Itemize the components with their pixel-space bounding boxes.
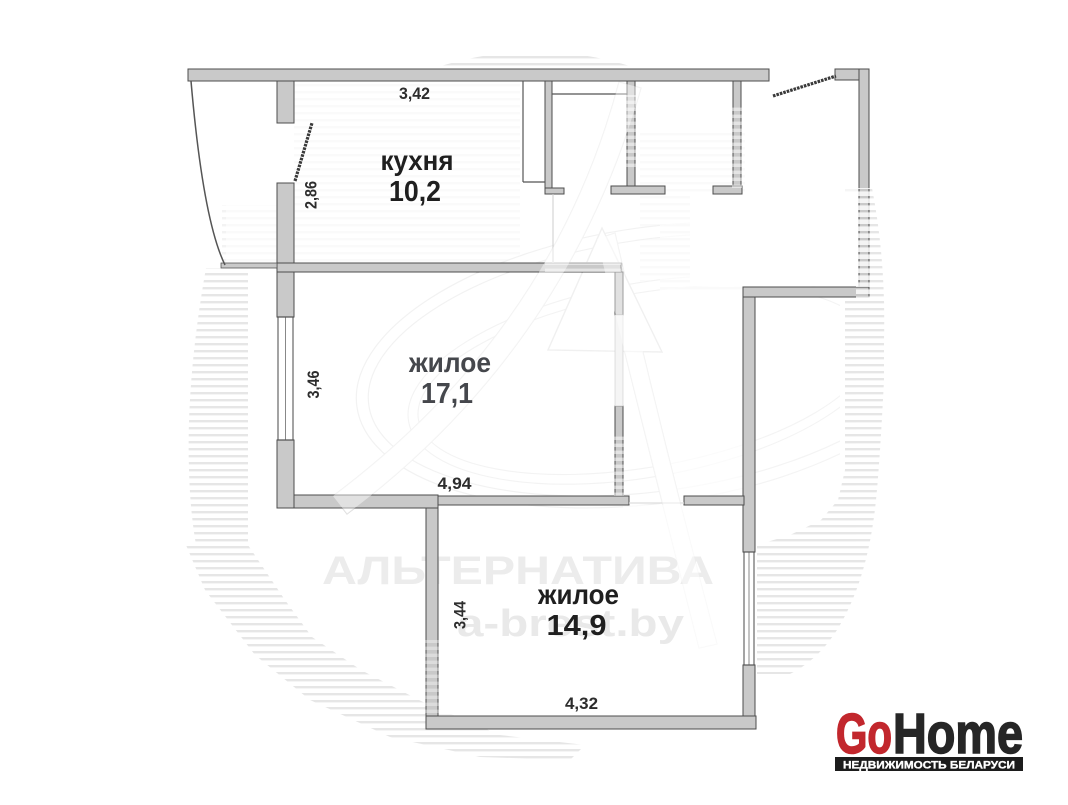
svg-text:Go: Go [836, 702, 892, 766]
svg-text:НЕДВИЖИМОСТЬ БЕЛАРУСИ: НЕДВИЖИМОСТЬ БЕЛАРУСИ [843, 760, 1015, 772]
svg-text:АЛЬТЕРНАТИВА: АЛЬТЕРНАТИВА [322, 549, 714, 593]
svg-text:3,44: 3,44 [451, 601, 470, 629]
svg-text:Home: Home [893, 702, 1023, 766]
svg-text:2,86: 2,86 [302, 181, 321, 209]
svg-text:жилое: жилое [537, 579, 619, 610]
svg-text:кухня: кухня [381, 145, 454, 176]
svg-text:17,1: 17,1 [421, 378, 473, 410]
svg-text:3,46: 3,46 [304, 371, 323, 399]
svg-text:3,42: 3,42 [399, 84, 430, 103]
svg-text:жилое: жилое [408, 347, 491, 378]
svg-text:10,2: 10,2 [389, 176, 441, 208]
svg-text:4,32: 4,32 [565, 694, 598, 713]
svg-text:4,94: 4,94 [438, 474, 473, 493]
svg-text:14,9: 14,9 [547, 610, 607, 642]
